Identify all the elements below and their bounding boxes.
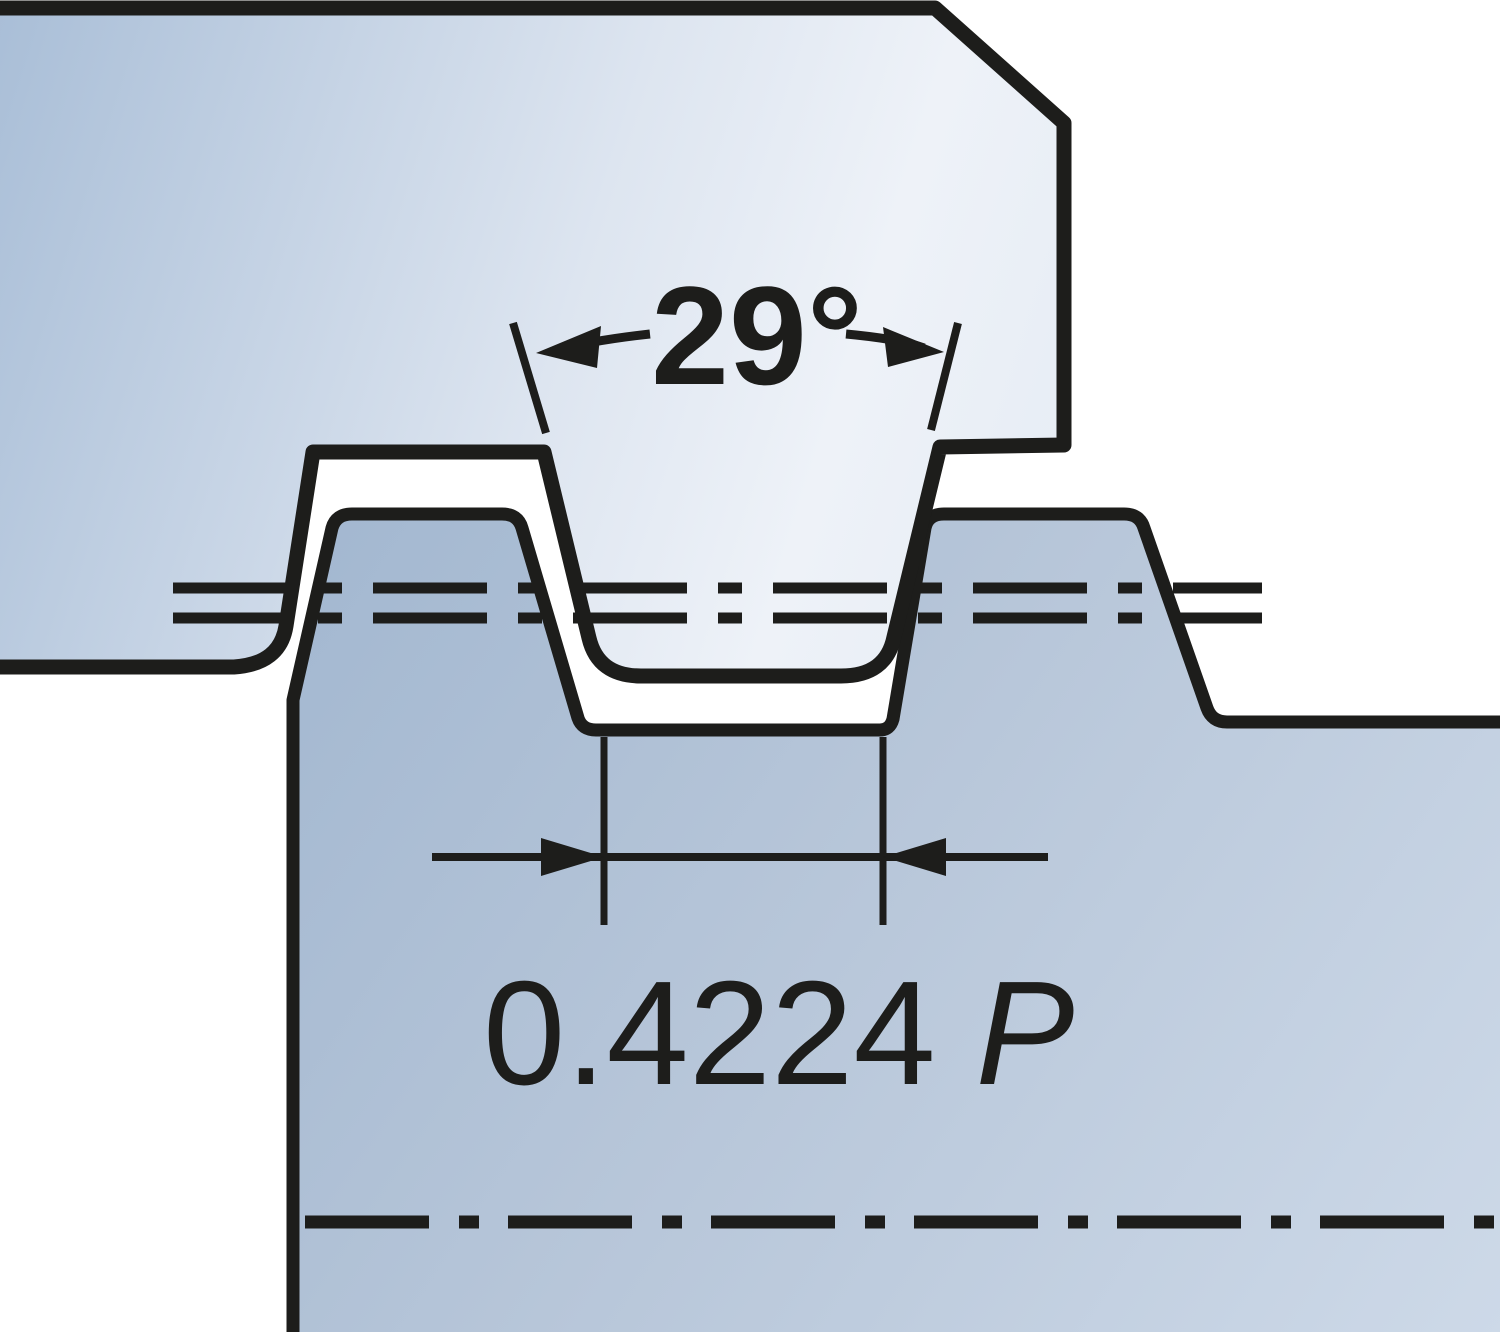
width-label-symbol: P	[976, 951, 1075, 1116]
width-label-value: 0.4224	[483, 951, 936, 1116]
angle-label: 29°	[651, 257, 863, 414]
width-label: 0.4224P	[483, 951, 1074, 1116]
thread-profile-diagram: 29° 0.4224P	[0, 0, 1500, 1332]
